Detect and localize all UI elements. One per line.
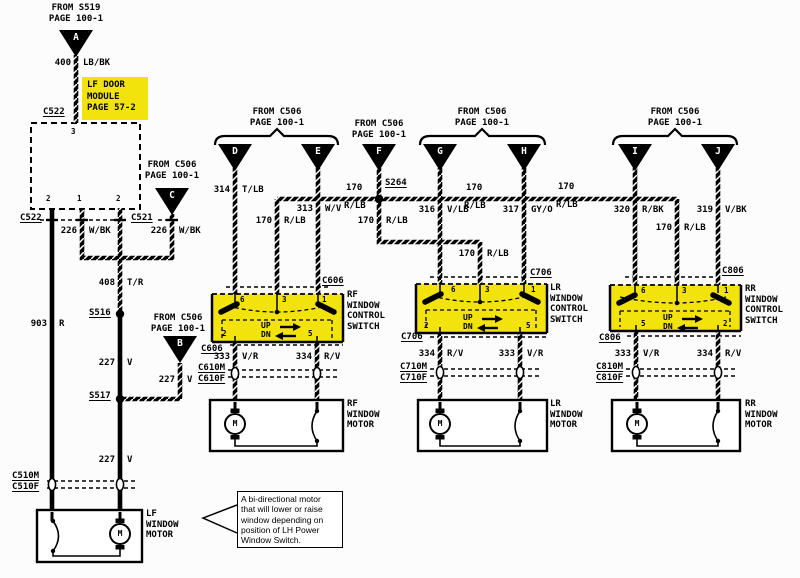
wire-label-170-lr: 170R/LB xyxy=(449,249,509,259)
lr-pin-3: 3 xyxy=(485,286,490,294)
feed-c-header: FROM C506PAGE 100-1 xyxy=(117,160,227,182)
module-pin-2b: 2 xyxy=(116,195,121,203)
connector-c522-top: C522 xyxy=(43,107,65,117)
wire-label-334-rr: 334R/V xyxy=(687,349,741,359)
rr-pin-1: 1 xyxy=(724,287,729,295)
rr-motor-name: RRWINDOWMOTOR xyxy=(745,399,778,431)
bus-label-170-hi-num: 170 xyxy=(558,182,574,192)
connector-c806-bottom: C806 xyxy=(599,333,621,343)
module-pin-1: 1 xyxy=(77,195,82,203)
feed-braces xyxy=(215,129,737,145)
rf-pin-3: 3 xyxy=(282,296,287,304)
connector-letter-h: H xyxy=(515,147,533,157)
rf-up-label: UP xyxy=(261,321,271,330)
feed-f-header: FROM C506PAGE 100-1 xyxy=(324,119,434,141)
rf-dn-label: DN xyxy=(261,330,271,339)
rf-pin-1: 1 xyxy=(322,296,327,304)
wire-label-226a: 226W/BK xyxy=(51,226,111,236)
lr-dn-label: DN xyxy=(463,322,473,331)
bus-label-170-num: 170 xyxy=(346,183,362,193)
rr-window-control-switch xyxy=(610,285,741,332)
lf-motor-name: LFWINDOWMOTOR xyxy=(146,509,179,541)
wire-label-334-lr: 334R/V xyxy=(409,349,463,359)
lr-pin-1: 1 xyxy=(531,286,536,294)
rr-pin-2: 2 xyxy=(723,320,728,328)
connector-letter-i: I xyxy=(626,147,644,157)
wire-label-333-rr: 333V/R xyxy=(605,349,659,359)
lr-motor-symbol-label: M xyxy=(433,419,447,428)
connector-c510f: C510F xyxy=(12,482,39,492)
connector-c710f: C710F xyxy=(400,373,427,383)
bus-label-170-gh-num: 170 xyxy=(466,183,482,193)
splice-s264-label: S264 xyxy=(385,178,407,188)
connector-c810m: C810M xyxy=(596,362,623,372)
rr-up-label: UP xyxy=(663,313,673,322)
wire-label-170-rr: 170R/LB xyxy=(646,223,706,233)
lr-pin-2: 2 xyxy=(424,322,429,330)
rr-pin-6: 6 xyxy=(641,287,646,295)
connector-letter-f: F xyxy=(370,147,388,157)
connector-c706-top: C706 xyxy=(530,268,552,278)
wire-label-334-rf: 334R/V xyxy=(286,352,340,362)
connector-letter-e: E xyxy=(309,147,327,157)
rr-dn-label: DN xyxy=(663,322,673,331)
rr-switch-name: RRWINDOW CONTROLSWITCH xyxy=(745,284,783,326)
connector-c610f: C610F xyxy=(198,374,225,384)
connector-c522-bottom: C522 xyxy=(20,213,42,223)
connector-letter-j: J xyxy=(709,147,727,157)
wire-label-227c: 227V xyxy=(89,455,132,465)
note-box: A bi-directional motorthat will lower or… xyxy=(237,491,343,548)
wire-label-408: 408T/R xyxy=(89,278,143,288)
wire-label-317: 317GY/O xyxy=(493,205,553,215)
wire-label-170-rf: 170R/LB xyxy=(246,216,306,226)
wire-label-400: 400LB/BK xyxy=(45,58,110,68)
note-callout-pointer xyxy=(203,505,237,533)
rf-pin-2: 2 xyxy=(222,330,227,338)
connector-letter-d: D xyxy=(226,147,244,157)
rf-pin-6: 6 xyxy=(240,296,245,304)
feed-a-header: FROM S519PAGE 100-1 xyxy=(21,3,131,25)
wire-label-170-s264-down: 170R/LB xyxy=(348,216,408,226)
wire-label-314: 314T/LB xyxy=(204,185,264,195)
feed-de-header: FROM C506PAGE 100-1 xyxy=(222,107,332,129)
rr-motor-symbol-label: M xyxy=(630,419,644,428)
bus-label-170-hi-code: R/LB xyxy=(556,200,578,210)
feed-gh-header: FROM C506PAGE 100-1 xyxy=(427,107,537,129)
rf-motor-symbol-label: M xyxy=(228,419,242,428)
connector-letter-c: C xyxy=(163,191,181,201)
wire-label-226b: 226W/BK xyxy=(141,226,201,236)
connector-letter-b: B xyxy=(171,339,189,349)
lr-pin-5: 5 xyxy=(526,322,531,330)
bus-label-170-gh-code: R/LB xyxy=(464,201,486,211)
wire-label-313: 313W/V xyxy=(287,204,341,214)
splice-s264 xyxy=(375,195,383,203)
rr-pin-3: 3 xyxy=(682,287,687,295)
connector-letter-g: G xyxy=(431,147,449,157)
connector-c810f: C810F xyxy=(596,373,623,383)
connector-c806-top: C806 xyxy=(722,266,744,276)
connector-c710m: C710M xyxy=(400,362,427,372)
connector-c706-bottom: C706 xyxy=(401,332,423,342)
module-pin-3: 3 xyxy=(71,128,76,136)
splice-s516-label: S516 xyxy=(89,308,111,318)
lr-switch-name: LRWINDOW CONTROLSWITCH xyxy=(550,283,588,325)
wire-label-319: 319V/BK xyxy=(687,205,747,215)
lr-up-label: UP xyxy=(463,313,473,322)
wire-label-227a: 227V xyxy=(89,358,132,368)
lf-motor-symbol-label: M xyxy=(113,529,127,538)
connector-c610m: C610M xyxy=(198,363,225,373)
rr-pin-5: 5 xyxy=(641,320,646,328)
lf-door-module-label: LF DOORMODULEPAGE 57-2 xyxy=(82,77,148,120)
wiring-diagram-canvas: FROM S519PAGE 100-1 FROM C506PAGE 100-1 … xyxy=(0,0,800,578)
splice-s517 xyxy=(116,395,124,403)
lr-motor-name: LRWINDOWMOTOR xyxy=(550,399,583,431)
wire-label-227b: 227V xyxy=(149,375,192,385)
connector-c510m: C510M xyxy=(12,471,39,481)
connector-c606-bottom: C606 xyxy=(201,344,223,354)
feed-ij-header: FROM C506PAGE 100-1 xyxy=(620,107,730,129)
wire-label-903: 903R xyxy=(21,319,64,329)
splice-s517-label: S517 xyxy=(89,391,111,401)
bus-label-170-code: R/LB xyxy=(344,201,366,211)
connector-c521: C521 xyxy=(131,213,153,223)
rf-motor-name: RFWINDOWMOTOR xyxy=(347,399,380,431)
wire-label-333-lr: 333V/R xyxy=(489,349,543,359)
rf-switch-name: RFWINDOW CONTROLSWITCH xyxy=(347,290,385,332)
connector-letter-a: A xyxy=(67,33,85,43)
module-pin-2a: 2 xyxy=(46,195,51,203)
wire-label-320: 320R/BK xyxy=(604,205,664,215)
lr-pin-6: 6 xyxy=(451,286,456,294)
wire-label-316: 316V/LB xyxy=(409,205,469,215)
rf-pin-5: 5 xyxy=(308,330,313,338)
feed-b-header: FROM C506PAGE 100-1 xyxy=(123,313,233,335)
connector-c606-top: C606 xyxy=(322,276,344,286)
